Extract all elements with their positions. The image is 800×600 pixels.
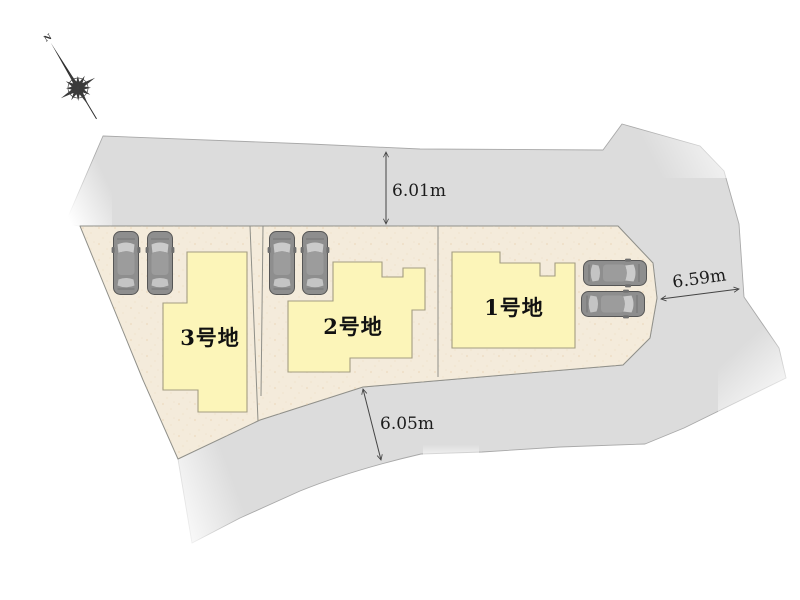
car-icon: [268, 232, 297, 295]
dimension-label-bottom: 6.05m: [380, 414, 434, 434]
car-icon: [146, 232, 175, 295]
lot3-label: 3号地: [180, 325, 240, 350]
road-fade-top-left: [30, 125, 112, 237]
dimension-label-top: 6.01m: [392, 181, 446, 201]
site-plan: 3号地 2号地 1号地 6.01m 6.59m 6.05m: [0, 0, 800, 600]
road-fade-top-right: [612, 96, 794, 178]
car-icon: [582, 290, 645, 319]
lot2-label: 2号地: [323, 314, 383, 339]
compass-star: [50, 60, 105, 116]
lot1-label: 1号地: [484, 295, 544, 320]
site-plan-canvas: 3号地 2号地 1号地 6.01m 6.59m 6.05m: [0, 0, 800, 600]
north-label: N: [42, 31, 53, 43]
road-fade-bottom-right: [718, 318, 800, 443]
car-icon: [112, 232, 141, 295]
car-icon: [584, 259, 647, 288]
road-fade-entrance: [423, 444, 479, 472]
compass: N: [28, 23, 114, 129]
car-icon: [301, 232, 330, 295]
